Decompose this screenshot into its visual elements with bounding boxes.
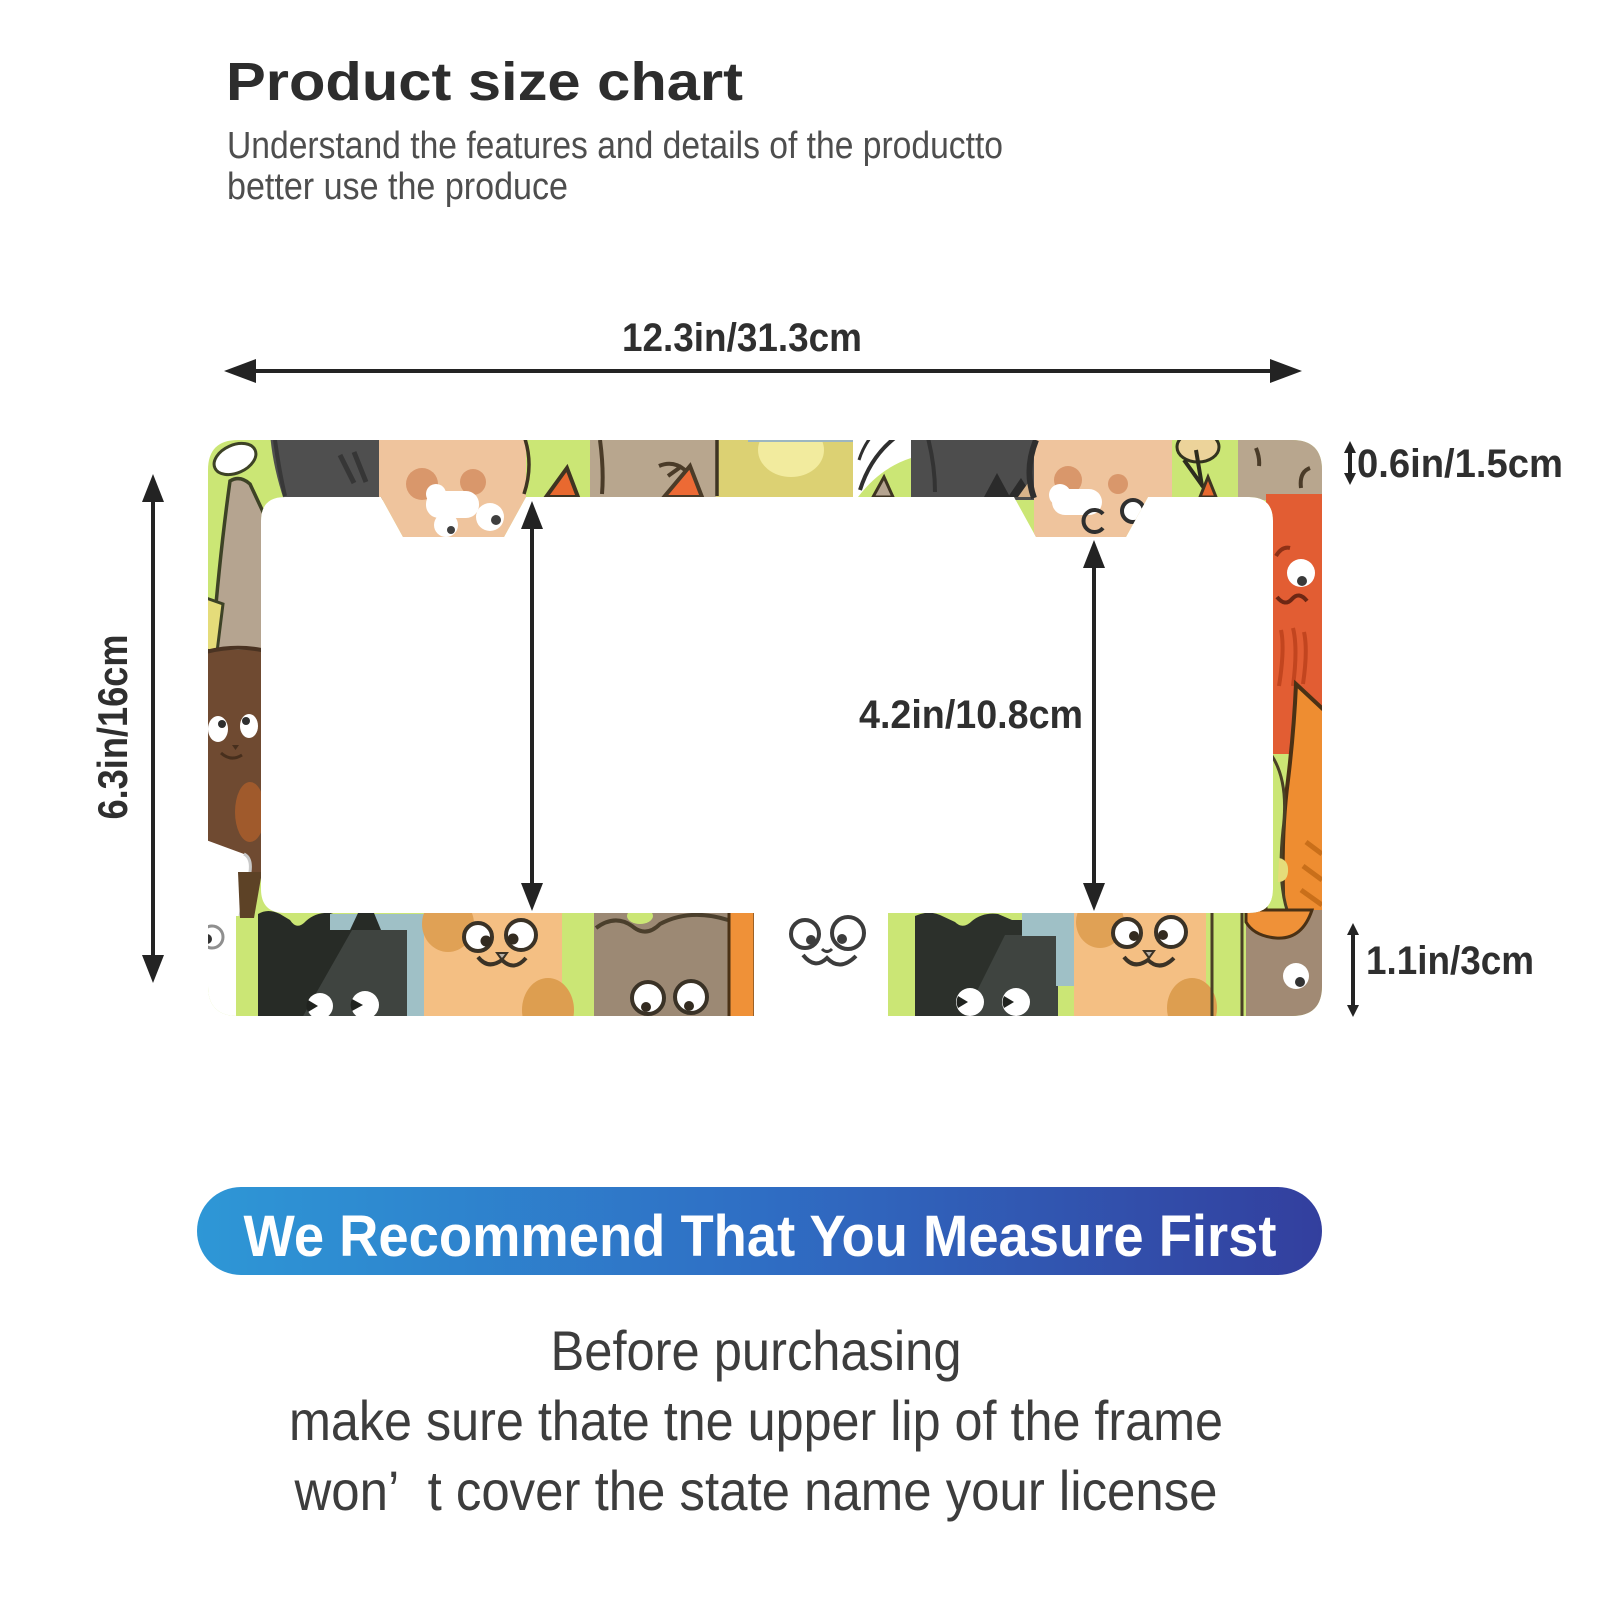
svg-text:6.3in/16cm: 6.3in/16cm	[89, 635, 136, 820]
svg-text:better use the produce: better use the produce	[227, 166, 568, 208]
svg-text:Understand the features and de: Understand the features and details of t…	[227, 125, 1003, 167]
svg-text:4.2in/10.8cm: 4.2in/10.8cm	[859, 693, 1083, 737]
svg-text:0.6in/1.5cm: 0.6in/1.5cm	[1357, 442, 1563, 486]
svg-text:12.3in/31.3cm: 12.3in/31.3cm	[622, 316, 862, 360]
svg-text:Before purchasing: Before purchasing	[551, 1319, 962, 1382]
svg-text:Product size chart: Product size chart	[226, 52, 743, 112]
svg-text:won’ t cover the state name y: won’ t cover the state name your license	[294, 1459, 1218, 1522]
svg-text:make sure thate tne upper lip: make sure thate tne upper lip of the fra…	[289, 1389, 1223, 1452]
svg-text:1.1in/3cm: 1.1in/3cm	[1366, 939, 1534, 983]
svg-text:We Recommend That You Measure: We Recommend That You Measure First	[244, 1204, 1277, 1269]
